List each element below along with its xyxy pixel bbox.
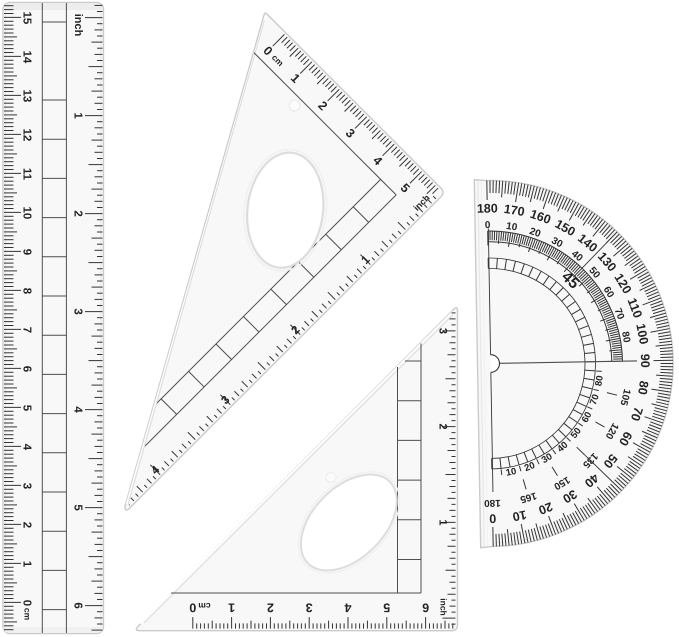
svg-text:3: 3 — [437, 328, 449, 334]
svg-text:4: 4 — [21, 444, 33, 451]
svg-text:1: 1 — [228, 600, 235, 614]
svg-text:10: 10 — [21, 207, 33, 220]
svg-text:6: 6 — [72, 602, 84, 608]
svg-text:2: 2 — [437, 424, 449, 430]
svg-text:cm: cm — [198, 601, 211, 611]
svg-text:80: 80 — [593, 375, 606, 387]
svg-text:15: 15 — [21, 12, 33, 25]
svg-text:inch: inch — [72, 14, 84, 37]
svg-text:10: 10 — [511, 507, 527, 523]
svg-text:0: 0 — [489, 511, 496, 525]
svg-text:180: 180 — [484, 497, 501, 508]
svg-text:12: 12 — [21, 129, 33, 142]
svg-text:2: 2 — [72, 210, 84, 216]
svg-text:13: 13 — [21, 90, 33, 103]
svg-text:3: 3 — [21, 483, 33, 489]
svg-text:0: 0 — [21, 600, 33, 606]
svg-text:0: 0 — [485, 220, 491, 231]
svg-text:9: 9 — [21, 249, 33, 255]
svg-text:1: 1 — [21, 561, 33, 568]
svg-text:1: 1 — [437, 519, 449, 525]
svg-text:14: 14 — [21, 51, 33, 64]
svg-text:10: 10 — [505, 221, 518, 234]
svg-text:8: 8 — [21, 288, 33, 295]
svg-text:7: 7 — [21, 327, 33, 333]
svg-text:10: 10 — [505, 466, 517, 479]
svg-text:180: 180 — [477, 201, 498, 215]
svg-text:inch: inch — [439, 598, 449, 615]
svg-text:0: 0 — [189, 600, 196, 614]
svg-text:5: 5 — [383, 600, 390, 614]
svg-text:3: 3 — [306, 600, 313, 614]
svg-text:1: 1 — [72, 112, 84, 119]
svg-text:3: 3 — [72, 308, 84, 314]
svg-text:2: 2 — [21, 522, 33, 528]
svg-text:6: 6 — [422, 600, 429, 614]
svg-text:90: 90 — [638, 354, 652, 368]
svg-text:cm: cm — [23, 608, 33, 621]
svg-text:4: 4 — [344, 600, 351, 614]
svg-text:11: 11 — [21, 168, 33, 181]
svg-text:5: 5 — [21, 405, 33, 412]
svg-text:4: 4 — [72, 406, 84, 413]
svg-text:80: 80 — [635, 380, 651, 396]
svg-text:5: 5 — [72, 504, 84, 511]
svg-text:2: 2 — [267, 600, 274, 614]
svg-text:6: 6 — [21, 366, 33, 372]
